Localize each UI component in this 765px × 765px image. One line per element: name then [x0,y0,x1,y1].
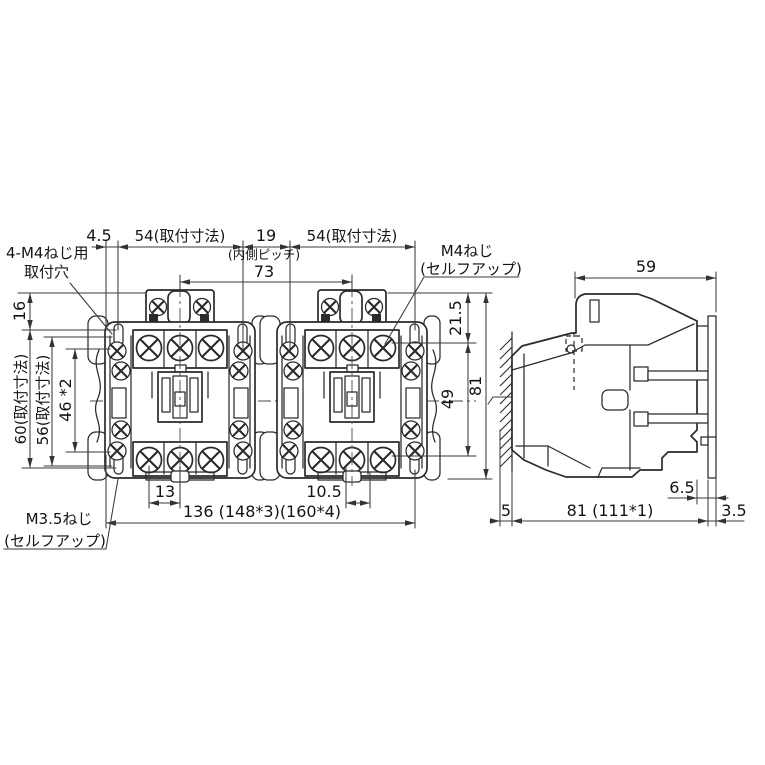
dim-top-offset: 16 [10,301,29,321]
dim-mount-pitch-left: 54(取付寸法) [135,227,226,245]
mounting-panel-hatch [500,338,512,467]
dimension-arrowhead [170,500,180,505]
dimension-arrowhead [483,293,488,303]
dimension-arrowhead [512,518,522,523]
dim-center-pitch: 73 [254,262,274,281]
din-plate [697,316,716,478]
dimension-arrowhead [706,275,716,280]
contactor-dimension-drawing: 4.5 54(取付寸法) 19 (内側ピッチ) 54(取付寸法) 73 16 6… [0,0,765,765]
dim-unit-gap: 19 [256,226,276,245]
dimension-arrowhead [465,343,470,353]
dim-hole-pitch-46: 46 *2 [56,378,75,422]
dim-panel-gap: 5 [501,501,511,520]
dim-terminal-span: 49 [438,389,457,409]
dim-rail-depth: 6.5 [669,478,694,497]
dimension-drawing-page: 4.5 54(取付寸法) 19 (内側ピッチ) 54(取付寸法) 73 16 6… [0,0,765,765]
dimension-arrowhead [149,500,159,505]
dimension-arrowhead [483,469,488,479]
dimension-arrowhead [49,456,54,466]
dim-plate-thickness: 3.5 [721,501,746,520]
side-view [488,294,716,478]
dim-mount-height-60: 60(取付寸法) [12,354,30,445]
dim-top-to-terminal: 21.5 [446,300,465,336]
dimension-arrowhead [346,500,356,505]
dimension-arrowhead [405,244,415,249]
dimension-arrowhead [465,333,470,343]
dimension-arrowhead [118,244,128,249]
datum-tick [488,397,493,404]
callout-mount-hole-line1: 4-M4ねじ用 [6,244,88,262]
dim-total-depth: 81 (111*1) [567,501,654,520]
dimension-arrowhead [716,495,726,500]
dim-unit-gap-note: (内側ピッチ) [228,247,300,262]
dimension-arrowhead [72,442,77,452]
dimension-arrowhead [27,458,32,468]
callout-m35-line2: (セルフアップ) [4,532,106,550]
dimension-arrowhead [465,446,470,456]
dimension-arrowhead [698,518,708,523]
dimension-arrowhead [342,279,352,284]
dimension-arrowhead [49,337,54,347]
dimension-arrowhead [465,293,470,303]
dimension-arrowhead [180,279,190,284]
contactor-unit-1 [88,284,268,486]
side-body-outline [512,294,697,477]
dim-mount-height-56: 56(取付寸法) [34,355,52,446]
callout-m35-line1: M3.5ねじ [26,510,93,528]
callout-m4-line2: (セルフアップ) [420,260,522,278]
dimension-arrowhead [575,275,585,280]
dim-total-width: 136 (148*3)(160*4) [183,502,341,521]
dimension-arrowhead [360,500,370,505]
callout-mount-hole-line2: 取付穴 [24,263,69,281]
dimension-arrowhead [490,518,500,523]
dim-total-height: 81 [466,376,485,396]
dim-screw-offset-105: 10.5 [306,482,342,501]
dimension-arrowhead [27,330,32,340]
dim-screw-pitch-13: 13 [155,482,175,501]
dim-mount-pitch-right: 54(取付寸法) [307,227,398,245]
dimension-arrowhead [72,349,77,359]
dimension-arrowhead [96,244,106,249]
dim-head-width: 59 [636,257,656,276]
dimension-arrowhead [405,520,415,525]
callout-m4-line1: M4ねじ [441,242,494,260]
dim-edge-offset: 4.5 [86,226,111,245]
